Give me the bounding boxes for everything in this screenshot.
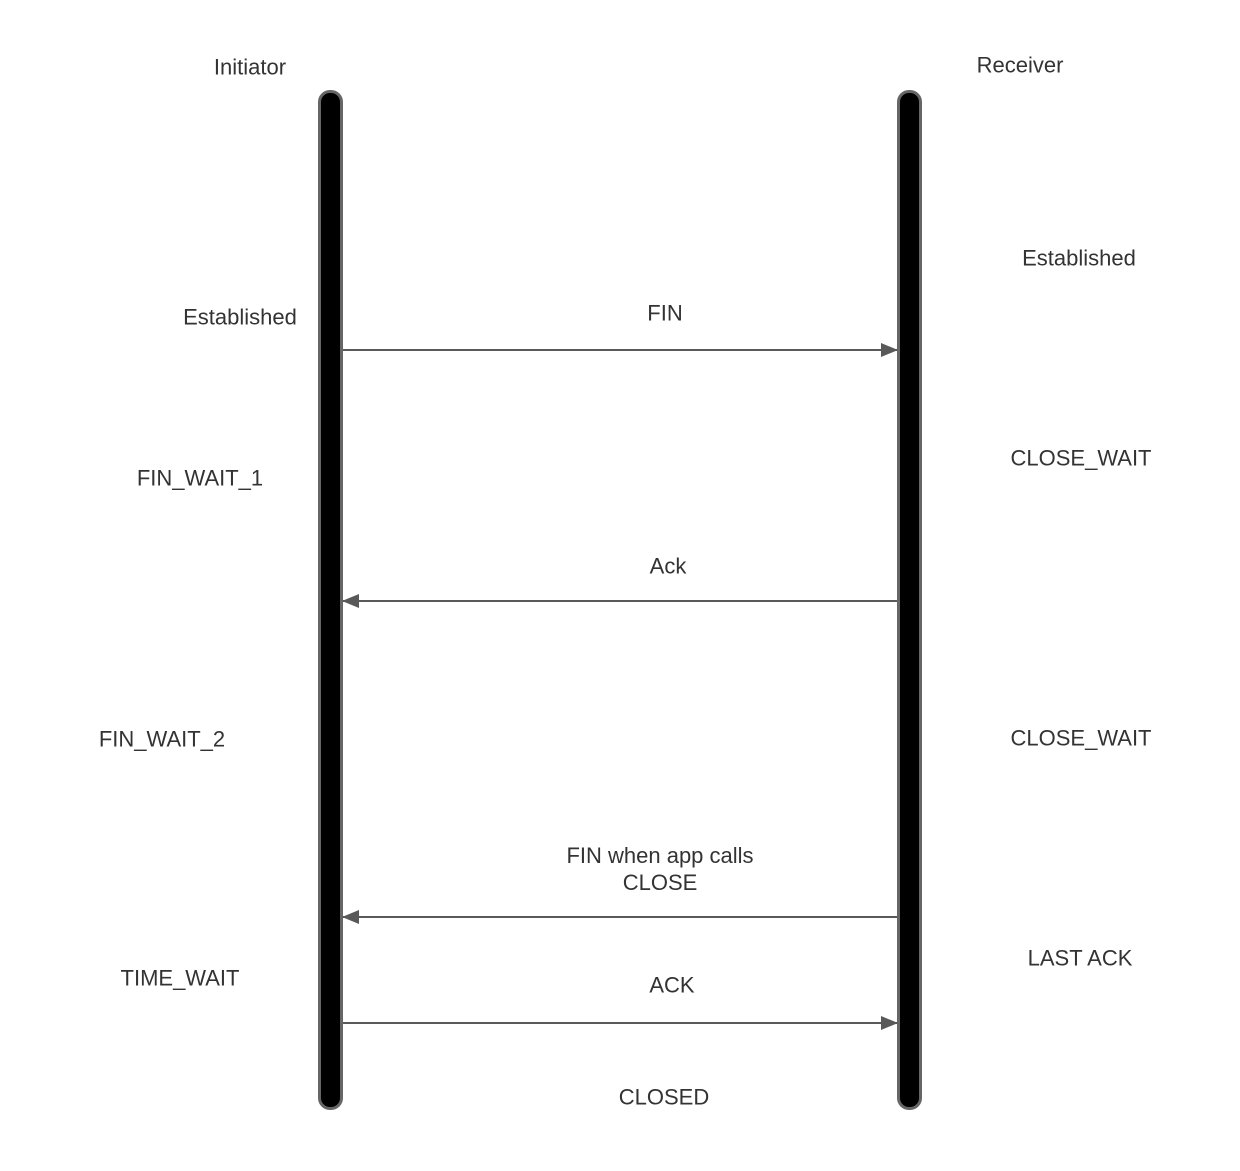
state-initiator-time-wait: TIME_WAIT xyxy=(121,965,240,992)
arrow-shaft xyxy=(343,600,897,602)
lifeline-initiator xyxy=(318,90,343,1110)
state-closed: CLOSED xyxy=(619,1084,709,1111)
message-label-fin: FIN xyxy=(647,300,682,327)
state-initiator-established: Established xyxy=(183,304,297,331)
arrowhead-right-icon xyxy=(881,343,898,357)
state-receiver-established: Established xyxy=(1022,245,1136,272)
arrow-shaft xyxy=(343,916,897,918)
arrowhead-left-icon xyxy=(342,910,359,924)
arrow-shaft xyxy=(343,1022,897,1024)
actor-label-initiator: Initiator xyxy=(214,54,286,81)
actor-label-receiver: Receiver xyxy=(977,52,1064,79)
state-receiver-close-wait-2: CLOSE_WAIT xyxy=(1011,725,1152,752)
message-label-ack: Ack xyxy=(650,553,687,580)
state-initiator-fin-wait-2: FIN_WAIT_2 xyxy=(99,726,225,753)
arrow-shaft xyxy=(343,349,897,351)
message-label-ack-final: ACK xyxy=(649,972,694,999)
state-receiver-close-wait-1: CLOSE_WAIT xyxy=(1011,445,1152,472)
state-initiator-fin-wait-1: FIN_WAIT_1 xyxy=(137,465,263,492)
sequence-diagram: Initiator Receiver Established FIN_WAIT_… xyxy=(0,0,1240,1171)
arrowhead-right-icon xyxy=(881,1016,898,1030)
arrowhead-left-icon xyxy=(342,594,359,608)
message-label-fin-close: FIN when app calls CLOSE xyxy=(566,842,753,896)
state-receiver-last-ack: LAST ACK xyxy=(1028,945,1133,972)
lifeline-receiver xyxy=(897,90,922,1110)
